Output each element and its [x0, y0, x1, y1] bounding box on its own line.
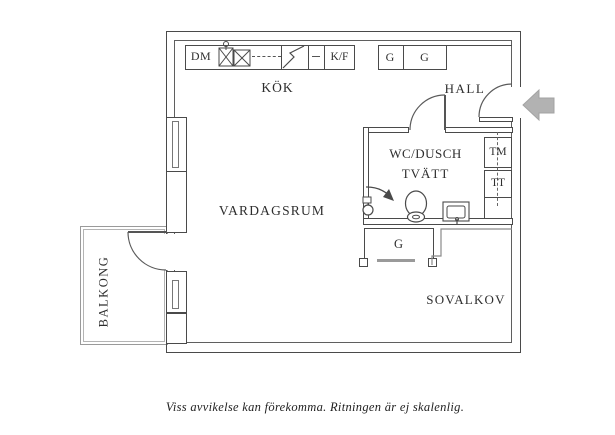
laundry-column-line — [484, 198, 485, 218]
closet-wall-stub-right — [428, 258, 437, 267]
hall-label: HALL — [431, 81, 499, 96]
balcony-door-opening — [164, 234, 189, 270]
fridge-freezer-label: K/F — [324, 51, 355, 64]
dryer-label: TT — [484, 177, 512, 190]
wc-top-wall-left — [363, 127, 409, 133]
wc-bottom-wall — [363, 218, 513, 225]
wardrobe-top-extension — [447, 45, 512, 46]
wc-door-leaf — [444, 95, 446, 130]
counter-divider-2 — [308, 45, 309, 70]
left-wall-piece-2 — [166, 313, 187, 344]
entrance-opening — [509, 87, 524, 118]
balcony-outline-inner — [83, 229, 165, 342]
wc-label-line2: TVÄTT — [368, 166, 483, 182]
wardrobe-2-label: G — [403, 50, 447, 65]
entry-arrow-icon — [523, 90, 554, 120]
entrance-door-leaf — [479, 117, 513, 122]
dishwasher-label: DM — [186, 50, 216, 63]
small-compartment-dash — [312, 56, 320, 57]
wc-top-wall-right — [445, 127, 513, 133]
wardrobe-1-label: G — [378, 50, 403, 65]
laundry-stack-dashed-line — [497, 132, 498, 206]
closet-wall-stub-left — [359, 258, 368, 267]
balcony-label: BALKONG — [97, 232, 112, 352]
left-wall-piece-1 — [166, 171, 187, 233]
closet-label: G — [364, 237, 434, 252]
sleeping-alcove-label: SOVALKOV — [420, 292, 512, 307]
plan-disclaimer: Viss avvikelse kan förekomma. Ritningen … — [110, 400, 520, 415]
kitchen-label: KÖK — [235, 80, 320, 96]
window-1-glass — [172, 121, 179, 168]
living-room-label: VARDAGSRUM — [198, 202, 346, 219]
counter-dashes — [252, 56, 281, 57]
washer-label: TM — [484, 146, 512, 159]
balcony-door-leaf — [128, 231, 167, 233]
window-2-glass — [172, 280, 179, 309]
floor-plan: DM K/F G G KÖK HALL WC/DUSCH TVÄTT TM TT… — [0, 0, 615, 435]
counter-divider-1 — [281, 45, 282, 70]
closet-sliding-door — [377, 259, 415, 262]
wc-label-line1: WC/DUSCH — [368, 146, 483, 162]
